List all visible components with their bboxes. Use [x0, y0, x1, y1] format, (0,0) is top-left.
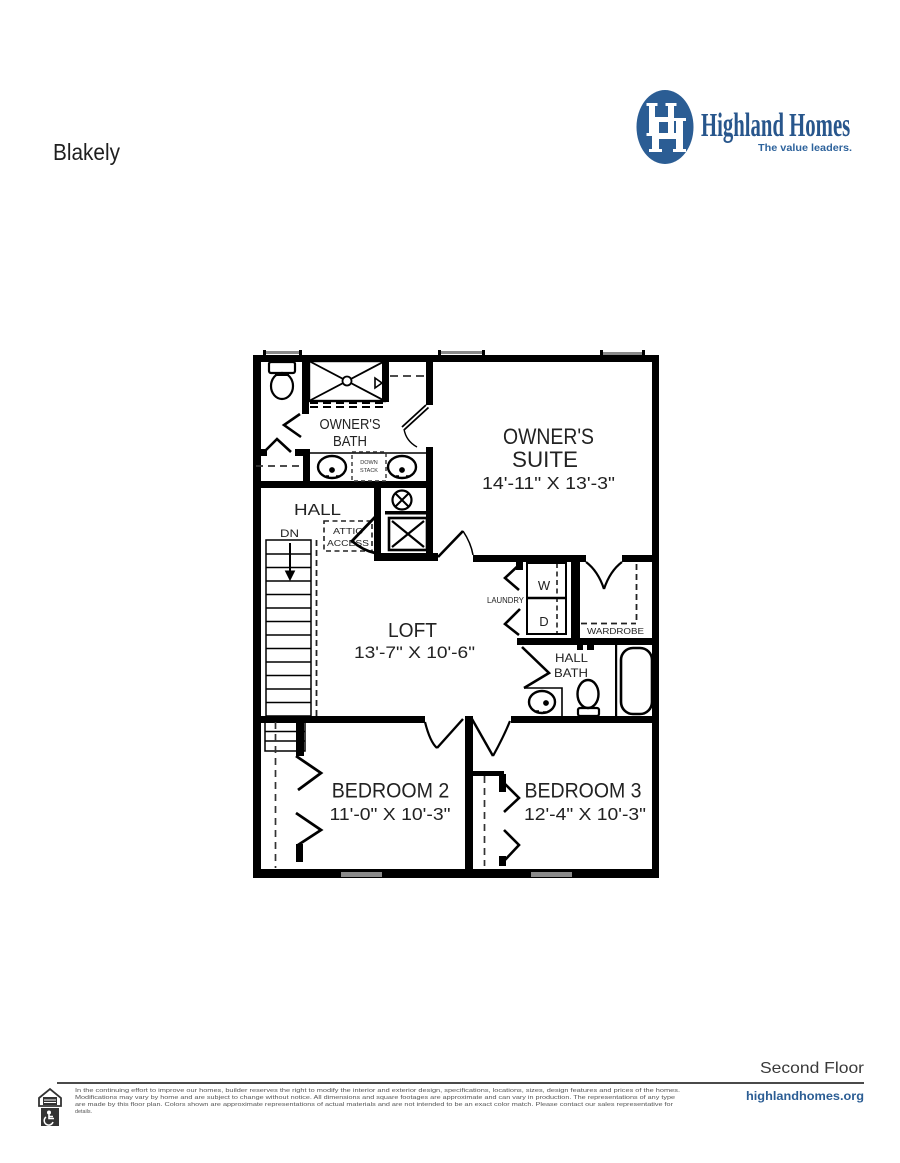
svg-text:D: D [539, 614, 548, 629]
svg-text:13'-7" X 10'-6": 13'-7" X 10'-6" [354, 643, 475, 662]
svg-text:11'-0" X 10'-3": 11'-0" X 10'-3" [330, 804, 451, 824]
svg-text:BEDROOM 3: BEDROOM 3 [525, 780, 642, 803]
svg-text:DN: DN [280, 528, 299, 540]
svg-text:Blakely: Blakely [53, 139, 120, 165]
svg-text:ACCESS: ACCESS [327, 539, 369, 548]
svg-text:OWNER'S: OWNER'S [503, 424, 594, 449]
svg-text:The value leaders.: The value leaders. [758, 142, 852, 154]
svg-text:14'-11" X 13'-3": 14'-11" X 13'-3" [482, 473, 615, 493]
svg-text:OWNER'S: OWNER'S [320, 417, 381, 433]
svg-text:BEDROOM 2: BEDROOM 2 [332, 780, 450, 803]
svg-text:12'-4" X 10'-3": 12'-4" X 10'-3" [524, 804, 646, 824]
svg-text:SUITE: SUITE [512, 447, 578, 472]
svg-text:In the continuing effort to im: In the continuing effort to improve our … [75, 1088, 680, 1094]
svg-text:Modifications may vary by home: Modifications may vary by home and are s… [75, 1095, 675, 1101]
svg-text:highlandhomes.org: highlandhomes.org [746, 1089, 864, 1103]
svg-text:HALL: HALL [294, 502, 341, 519]
svg-text:Second Floor: Second Floor [760, 1060, 865, 1077]
svg-text:HALL: HALL [555, 651, 588, 665]
svg-text:Highland Homes: Highland Homes [701, 107, 850, 144]
svg-text:LAUNDRY: LAUNDRY [487, 596, 525, 605]
svg-text:BATH: BATH [554, 666, 588, 680]
svg-text:W: W [538, 578, 551, 593]
svg-text:STACK: STACK [360, 468, 378, 474]
svg-text:BATH: BATH [333, 434, 367, 450]
svg-text:WARDROBE: WARDROBE [587, 626, 644, 636]
svg-text:DOWN: DOWN [360, 460, 377, 466]
svg-text:details.: details. [75, 1109, 92, 1115]
svg-text:LOFT: LOFT [388, 620, 437, 642]
svg-text:are made by this floor plan. C: are made by this floor plan. Colors show… [75, 1102, 673, 1108]
